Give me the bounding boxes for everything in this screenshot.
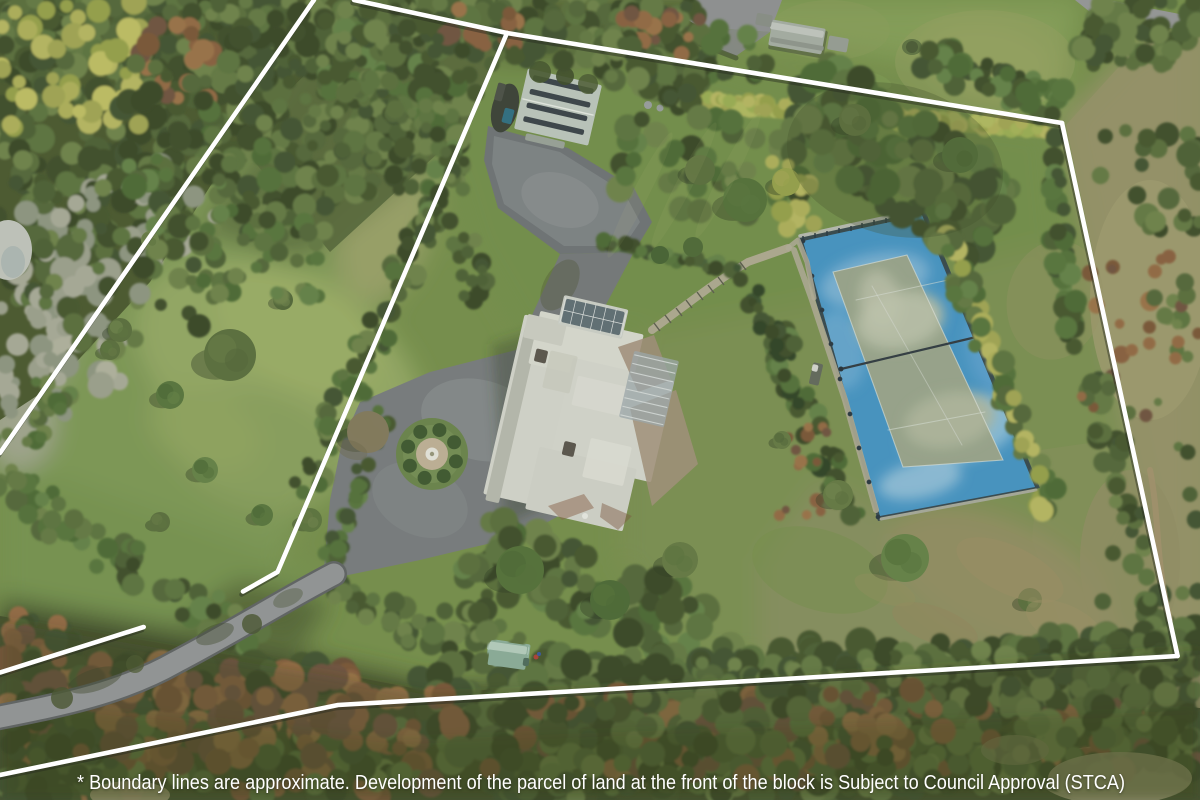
svg-text:* Boundary lines are approxima: * Boundary lines are approximate. Develo… bbox=[77, 772, 1125, 794]
